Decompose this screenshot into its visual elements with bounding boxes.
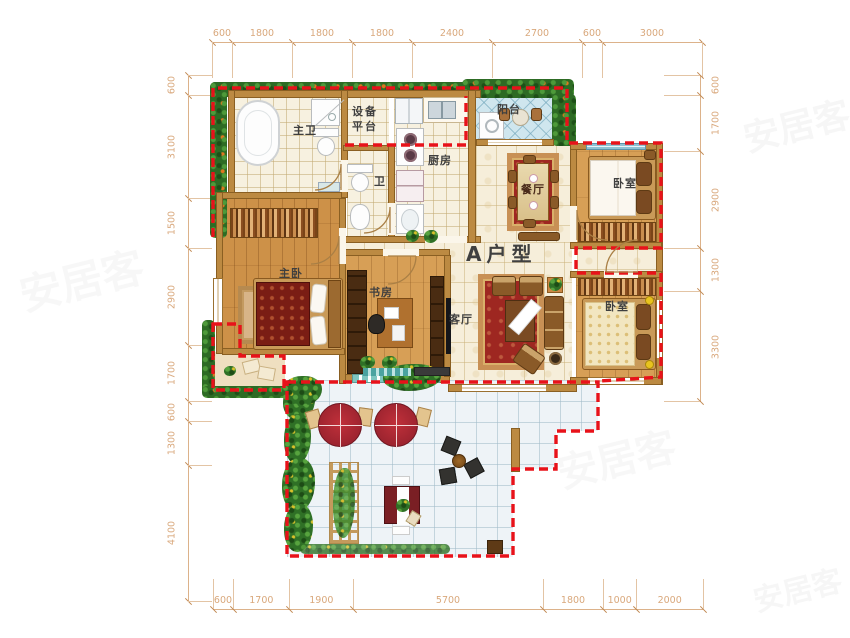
kitchen-cabinet <box>395 98 423 124</box>
master-pillow <box>310 315 328 345</box>
bathtub-inner <box>244 110 272 156</box>
floor-lamp <box>549 352 562 365</box>
wall-bath-left <box>228 90 235 198</box>
room-label-kitchen: 厨房 <box>428 152 452 168</box>
outdoor-chair-pad <box>392 476 410 485</box>
door-opening-master <box>339 228 346 264</box>
wardrobe-master <box>230 208 318 238</box>
burner <box>404 149 417 162</box>
toilet-master-bowl <box>317 137 335 156</box>
wall-kitchen-right <box>468 90 476 243</box>
bay-window-master <box>213 278 223 324</box>
room-label-bedroom-top: 卧室 <box>613 175 637 191</box>
window-living <box>462 384 546 392</box>
door-opening-bedroom-top <box>570 206 577 242</box>
door-opening-study <box>383 249 419 256</box>
room-label-dining: 餐厅 <box>521 181 545 197</box>
toilet-bath-tank <box>347 164 373 173</box>
floor-plan: 主卫 设备 平台 厨房 卫 阳台 餐厅 卧室 主卧 书房 客厅 卧室 A户型 <box>0 0 850 638</box>
dining-chair <box>523 219 536 228</box>
umbrella-rib <box>319 425 363 426</box>
window-bedroom-top <box>586 143 646 150</box>
hedge-balcony-right <box>552 94 576 146</box>
wall-master-top <box>217 192 346 199</box>
room-label-master-bedroom: 主卧 <box>279 265 303 281</box>
wall-bedroom-top-bottom <box>570 242 662 249</box>
dining-chair <box>508 196 517 209</box>
bed-top-pillow <box>636 162 652 186</box>
kitchen-sink <box>428 101 456 119</box>
toilet-bath-bowl <box>351 173 369 192</box>
umbrella-rib <box>375 425 419 426</box>
wardrobe-bedroom-top <box>578 222 656 242</box>
room-label-living: 客厅 <box>449 311 473 327</box>
room-label-balcony: 阳台 <box>497 101 521 117</box>
coffee-table <box>505 300 535 342</box>
terrace-vine-bottom <box>300 544 450 554</box>
shower-head <box>328 113 336 121</box>
armchair <box>519 276 543 296</box>
dining-chair <box>550 170 559 183</box>
sofa <box>544 296 564 350</box>
wall-terrace-pillar <box>511 428 520 472</box>
kitchen-basin-oval <box>401 209 419 231</box>
nightstand <box>644 150 656 160</box>
equipment-platform-line2: 平台 <box>352 119 378 134</box>
bed-bottom-pillow <box>636 304 651 330</box>
hedge-master-balcony-left <box>202 320 215 396</box>
desk-chair <box>368 314 385 334</box>
bathtub <box>236 100 280 166</box>
terrace-pot <box>487 540 503 554</box>
door-opening-bedroom-bottom <box>604 271 638 278</box>
umbrella-rib <box>340 404 341 448</box>
room-label-bedroom-bottom: 卧室 <box>605 298 629 314</box>
hedge-master-balcony-bottom <box>202 386 292 398</box>
fridge <box>396 170 424 202</box>
room-label-bath: 卫 <box>374 173 386 189</box>
wall-master-left <box>216 192 223 354</box>
floor-plan-canvas: 6001800180018002400270060030006001700190… <box>0 0 850 638</box>
window-bedroom-bottom <box>588 377 644 385</box>
umbrella-rib <box>396 404 397 448</box>
paper <box>392 325 405 341</box>
floor-foyer <box>577 249 657 272</box>
vanity-cabinet <box>318 182 340 192</box>
equipment-platform-line1: 设备 <box>352 104 378 119</box>
bed-bottom-pillow <box>636 334 651 360</box>
bedside-lamp <box>645 360 654 369</box>
stove <box>396 128 424 166</box>
master-headboard <box>328 280 341 348</box>
tv-console <box>430 276 444 372</box>
outdoor-chair-pad <box>392 526 410 535</box>
patio-chair <box>439 467 458 486</box>
room-label-study: 书房 <box>369 284 393 300</box>
plate <box>529 201 538 210</box>
window-bedroom-bottom-right <box>656 300 663 358</box>
room-label-master-bath: 主卫 <box>293 122 317 138</box>
burner <box>404 133 417 146</box>
wash-basin <box>350 204 370 230</box>
wardrobe-bedroom-bottom <box>578 278 656 296</box>
dining-chair <box>550 196 559 209</box>
master-duvet <box>256 282 310 346</box>
washer-door <box>485 119 499 133</box>
wall-equipment-bottom <box>343 145 392 151</box>
armchair <box>492 276 516 296</box>
door-opening-bath <box>388 203 395 235</box>
room-label-equipment-platform: 设备 平台 <box>352 104 378 134</box>
teal-mat <box>363 368 411 376</box>
balcony-cushion <box>257 366 276 382</box>
balcony-chair <box>531 108 542 121</box>
bed-top-pillow <box>636 190 652 214</box>
unit-title: A户型 <box>466 238 536 267</box>
paper <box>384 307 399 319</box>
dining-chair <box>523 155 536 164</box>
master-pillow <box>310 283 328 313</box>
window-balcony <box>488 139 542 146</box>
umbrella <box>374 403 418 447</box>
terrace-bench <box>414 367 450 376</box>
umbrella <box>318 403 362 447</box>
patio-round-table <box>452 454 466 468</box>
bedside-lamp <box>645 296 654 305</box>
dining-chair <box>508 170 517 183</box>
